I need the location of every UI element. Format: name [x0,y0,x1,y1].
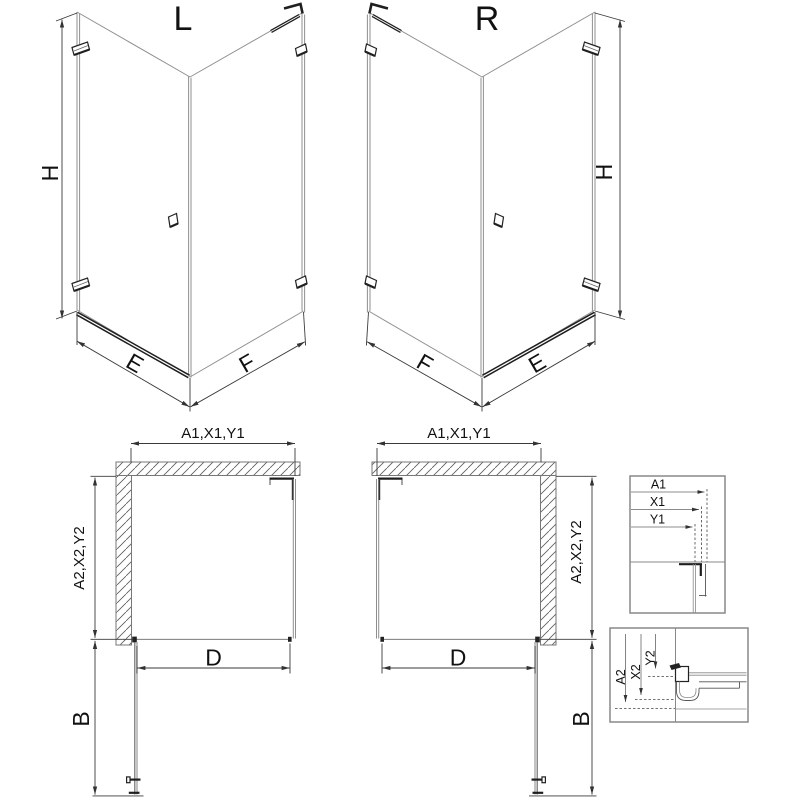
plan-right-width-dim-label: A1,X1,Y1 [427,425,490,442]
door-width-label-right: E [524,348,550,378]
plan-left-width-dim-label: A1,X1,Y1 [181,425,244,442]
detail-depth-label-x2: X2 [629,664,643,679]
plan-left-drawing: A1,X1,Y1 A2,X2,Y2 D B [68,425,300,796]
wall-side-left-plan [116,476,132,646]
detail-depth-label-y2: Y2 [644,650,658,665]
plan-right-geometry [377,444,546,795]
height-label-right: H [591,164,617,181]
iso-right-geometry [365,4,600,412]
detail-width-label-y1: Y1 [650,513,665,527]
iso-left-drawing: L H E F [37,0,307,412]
technical-drawing-page: L H E F R H E F A1,X1,Y1 A2,X2,Y2 D B [0,0,800,800]
plan-right-vertical-dimensions [529,476,597,796]
panel-width-label-left: F [234,348,259,378]
variant-label-right: R [475,0,500,38]
panel-width-label-right: F [412,348,437,378]
plan-right-depth-dim-label: A2,X2,Y2 [568,520,585,583]
plan-left-door-swing-label: B [68,711,94,726]
plan-right-door-clearance-label: D [450,645,467,671]
plan-left-depth-dim-label: A2,X2,Y2 [71,526,88,589]
plan-right-door-swing-label: B [568,711,594,726]
plan-left-geometry [127,444,296,795]
detail-width-label-x1: X1 [650,495,665,509]
shower-enclosure-diagram: L H E F R H E F A1,X1,Y1 A2,X2,Y2 D B [0,0,800,800]
plan-right-drawing: A1,X1,Y1 A2,X2,Y2 D B [372,425,597,796]
iso-right-drawing: R H E F [365,0,625,412]
wall-top-left-plan [116,462,300,476]
wall-top-right-plan [372,462,556,476]
iso-left-geometry [72,4,307,412]
variant-label-left: L [174,0,193,38]
wall-side-right-plan [541,476,557,646]
detail-depth-label-a2: A2 [614,669,628,684]
detail-box-depth: A2 X2 Y2 [610,628,748,722]
door-width-label-left: E [122,348,148,378]
plan-left-door-clearance-label: D [205,645,222,671]
detail-width-label-a1: A1 [651,478,666,492]
detail-box-width: A1 X1 Y1 [630,476,725,613]
height-label-left: H [37,165,63,182]
